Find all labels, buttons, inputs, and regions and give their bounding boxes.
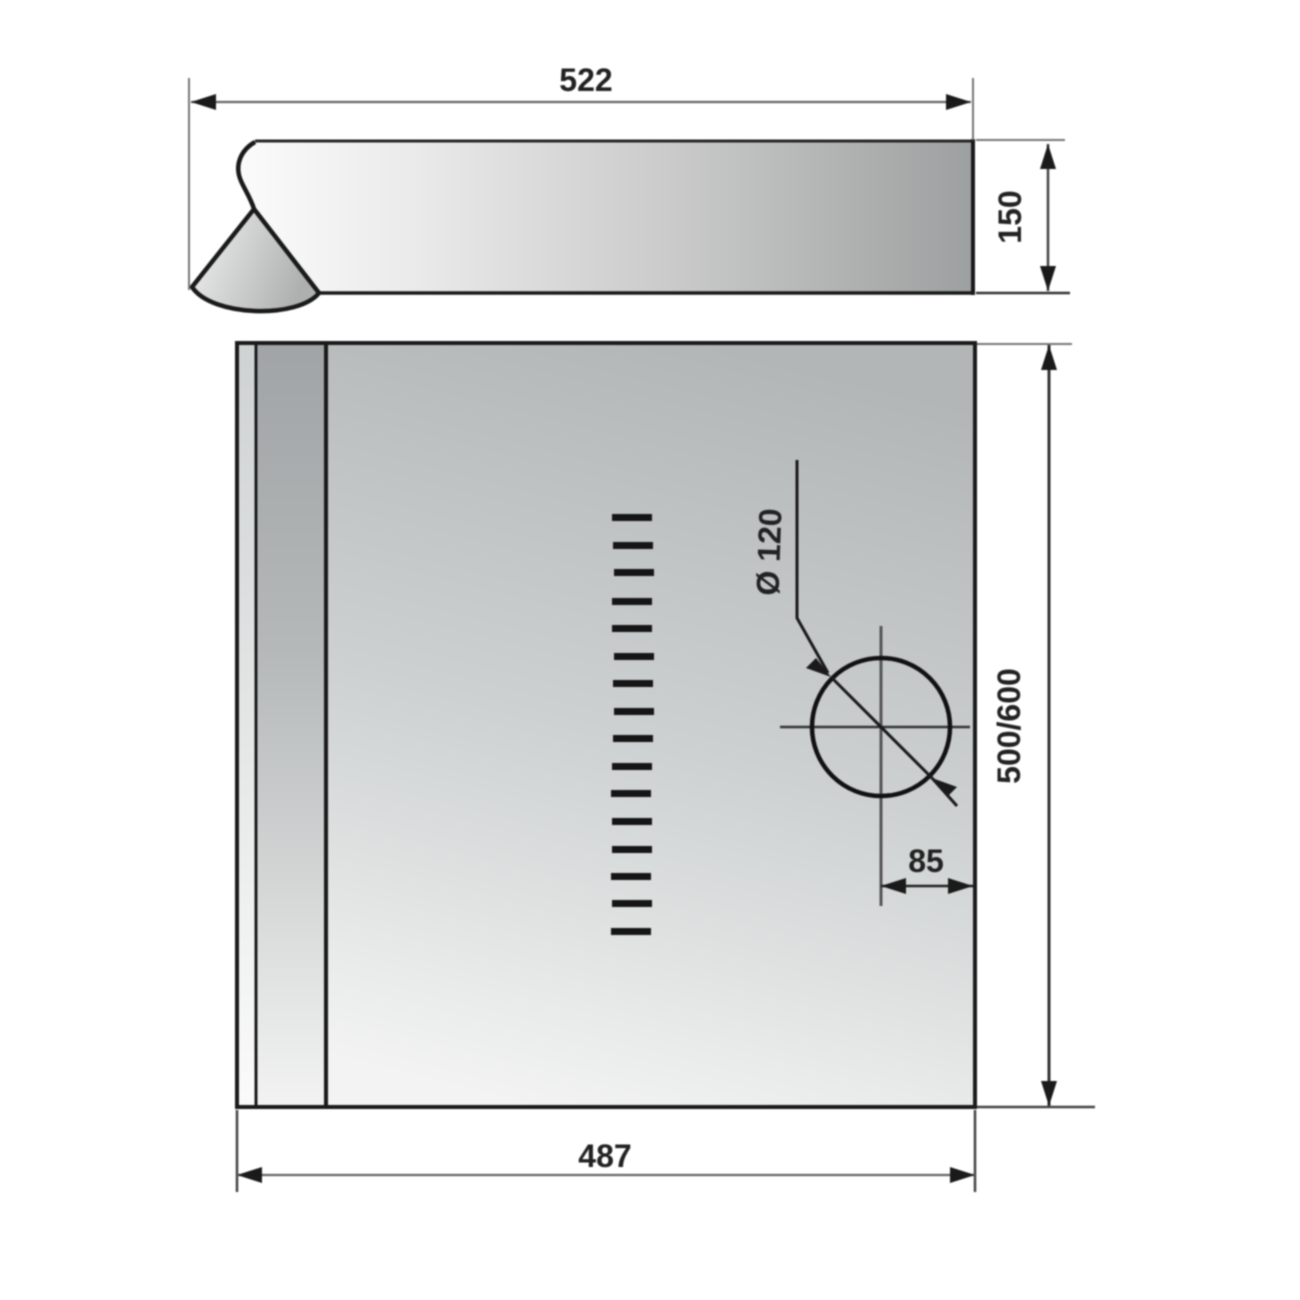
- svg-text:150: 150: [992, 190, 1028, 243]
- svg-text:487: 487: [578, 1138, 631, 1174]
- svg-text:85: 85: [908, 843, 944, 879]
- svg-text:522: 522: [559, 62, 612, 98]
- svg-text:Ø 120: Ø 120: [749, 508, 788, 596]
- svg-text:500/600: 500/600: [991, 668, 1027, 784]
